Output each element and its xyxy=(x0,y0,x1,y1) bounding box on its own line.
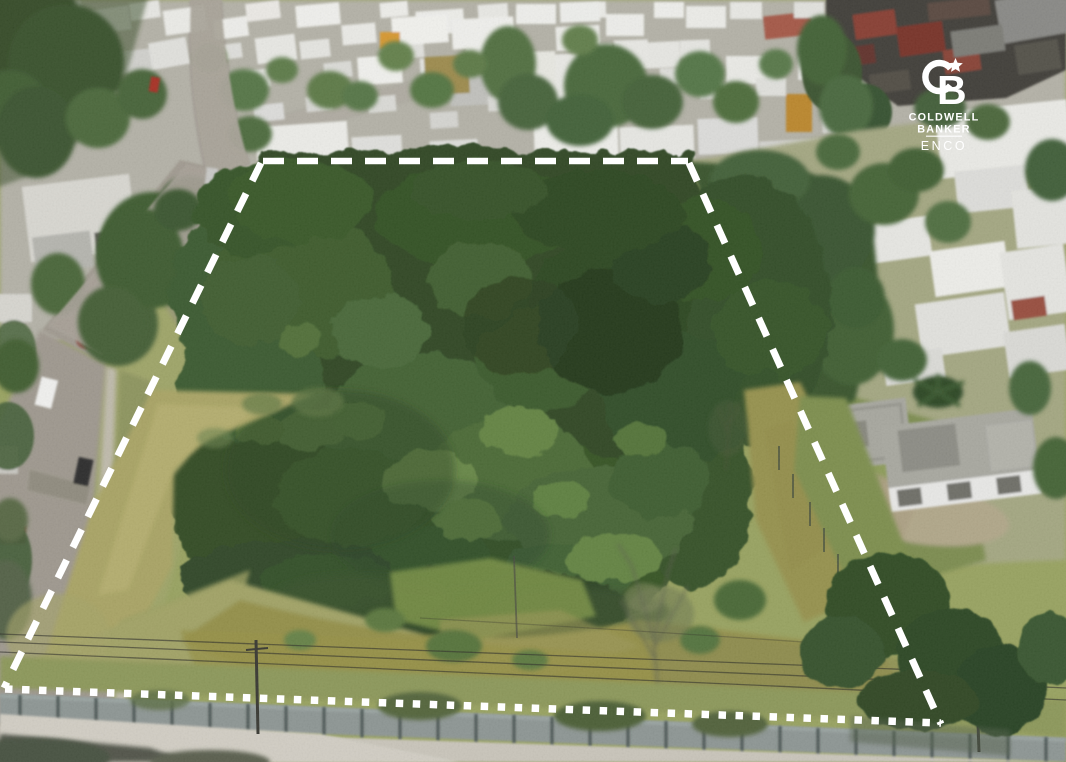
svg-text:BANKER: BANKER xyxy=(917,124,970,136)
svg-text:B: B xyxy=(937,67,967,113)
svg-text:ENCO: ENCO xyxy=(921,139,968,153)
svg-text:COLDWELL: COLDWELL xyxy=(909,112,980,124)
